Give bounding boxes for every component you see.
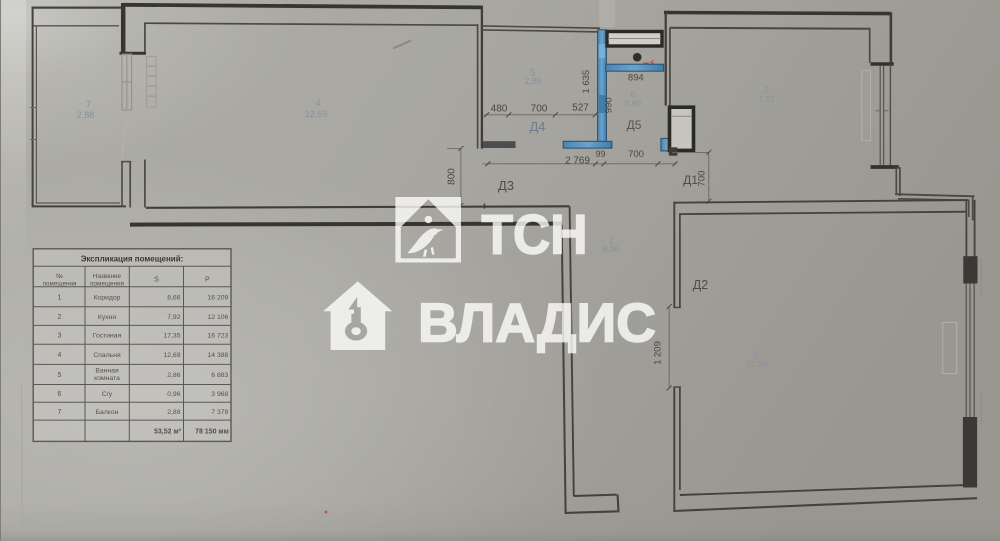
svg-text:Д2: Д2: [693, 278, 708, 292]
svg-text:8,86: 8,86: [603, 244, 620, 254]
svg-text:17,35: 17,35: [746, 359, 768, 369]
svg-text:№: №: [56, 273, 63, 280]
svg-text:Название: Название: [93, 273, 122, 280]
svg-text:800: 800: [447, 168, 458, 185]
svg-text:700: 700: [628, 149, 644, 160]
svg-text:78 150 мм: 78 150 мм: [195, 429, 229, 436]
svg-text:7,92: 7,92: [758, 94, 775, 104]
svg-text:894: 894: [628, 73, 644, 84]
svg-text:Коридор: Коридор: [94, 295, 121, 302]
svg-text:16 723: 16 723: [208, 333, 229, 340]
svg-text:12,69: 12,69: [305, 109, 328, 119]
svg-text:4: 4: [58, 352, 62, 359]
svg-text:7: 7: [86, 99, 91, 109]
svg-text:12 106: 12 106: [208, 314, 229, 321]
svg-text:12,69: 12,69: [163, 352, 180, 359]
svg-text:помещения: помещения: [90, 281, 124, 288]
svg-text:3: 3: [58, 333, 62, 340]
svg-text:99: 99: [595, 149, 605, 159]
svg-text:Гостиная: Гостиная: [93, 333, 122, 340]
svg-text:Кухня: Кухня: [98, 314, 117, 321]
svg-text:4: 4: [315, 98, 320, 108]
svg-text:7 379: 7 379: [211, 409, 228, 416]
svg-text:53,52 м²: 53,52 м²: [154, 429, 182, 436]
svg-text:1 635: 1 635: [581, 70, 592, 94]
svg-text:Д5: Д5: [627, 118, 642, 132]
svg-text:P: P: [205, 277, 210, 284]
svg-text:14 388: 14 388: [208, 352, 229, 359]
svg-text:2 769: 2 769: [565, 156, 590, 167]
svg-text:990: 990: [604, 97, 615, 113]
svg-text:Балкон: Балкон: [96, 409, 119, 416]
svg-text:ВЛАДИС: ВЛАДИС: [418, 292, 656, 354]
svg-text:С/у: С/у: [102, 391, 113, 398]
svg-text:17,35: 17,35: [163, 333, 180, 340]
svg-text:7: 7: [58, 409, 62, 416]
svg-text:Д3: Д3: [498, 178, 514, 193]
svg-text:2: 2: [58, 314, 62, 321]
svg-text:8,66: 8,66: [167, 295, 180, 302]
svg-text:Д4: Д4: [529, 119, 545, 134]
svg-text:2,86: 2,86: [524, 76, 542, 86]
svg-text:6 883: 6 883: [211, 372, 228, 379]
svg-text:6: 6: [58, 391, 62, 398]
svg-text:1: 1: [58, 295, 62, 302]
svg-text:3 968: 3 968: [211, 391, 228, 398]
svg-text:700: 700: [531, 104, 548, 115]
svg-text:700: 700: [697, 171, 708, 187]
svg-text:ТСН: ТСН: [482, 203, 588, 266]
svg-text:2,88: 2,88: [167, 409, 180, 416]
svg-text:480: 480: [491, 104, 508, 115]
svg-text:0,96: 0,96: [625, 98, 642, 108]
svg-text:Экспликация помещений:: Экспликация помещений:: [81, 254, 184, 263]
svg-text:0,96: 0,96: [167, 391, 180, 398]
svg-text:S: S: [154, 277, 159, 284]
svg-text:2,88: 2,88: [77, 110, 95, 120]
svg-text:Спальня: Спальня: [93, 352, 121, 359]
svg-text:2,86: 2,86: [167, 372, 180, 379]
svg-text:7,92: 7,92: [167, 314, 180, 321]
svg-text:Ванная: Ванная: [95, 367, 119, 374]
svg-text:комната: комната: [94, 375, 120, 382]
svg-text:5: 5: [58, 372, 62, 379]
svg-text:помещения: помещения: [43, 281, 77, 288]
svg-text:527: 527: [572, 103, 589, 114]
svg-text:16 209: 16 209: [208, 295, 229, 302]
